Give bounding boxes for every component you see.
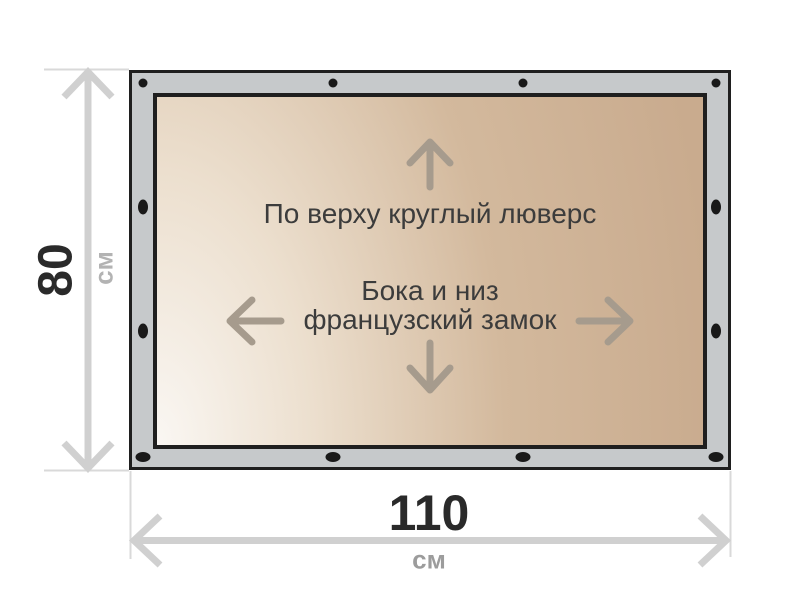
width-dimension-value: 110 xyxy=(389,484,470,542)
width-dimension-unit: см xyxy=(412,545,446,576)
sides-bottom-note-line1: Бока и низ xyxy=(130,277,730,305)
tarpaulin-dimension-diagram: По верху круглый люверс Бока и низ франц… xyxy=(0,0,800,600)
arrow-down-icon xyxy=(410,343,450,390)
arrow-up-icon xyxy=(410,142,450,187)
height-dimension-value: 80 xyxy=(29,243,84,296)
height-dimension-unit: см xyxy=(89,251,120,285)
top-edge-note: По верху круглый люверс xyxy=(130,200,730,228)
sides-bottom-note-line2: французский замок xyxy=(130,306,730,334)
